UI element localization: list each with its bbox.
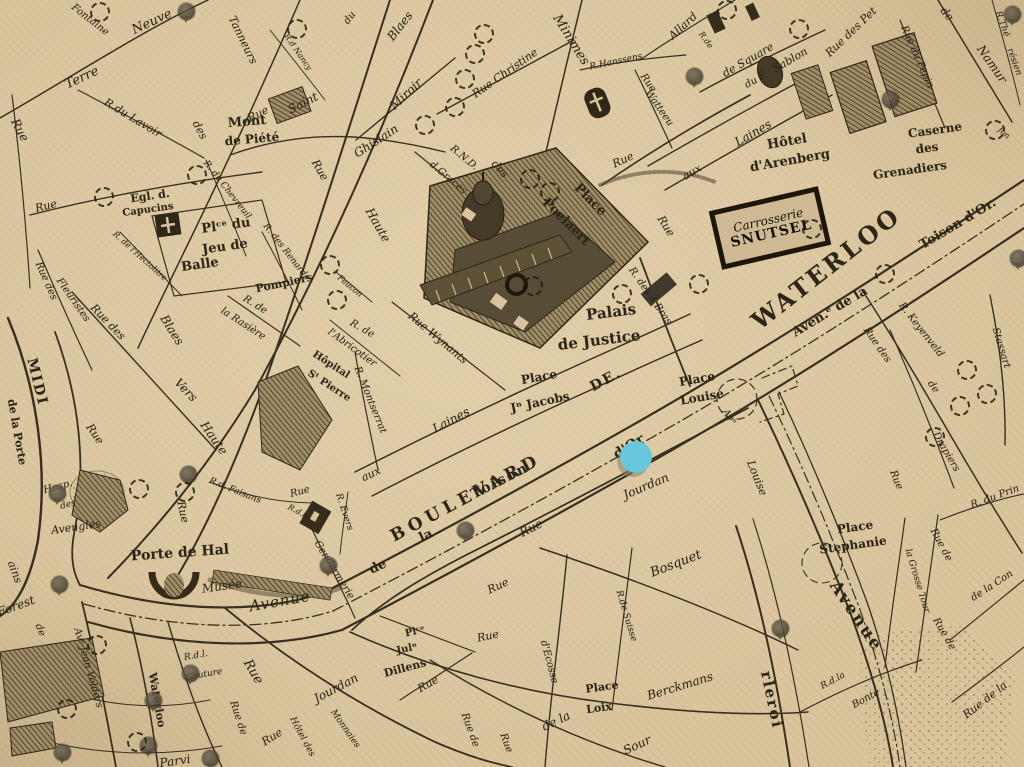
map-pin[interactable] — [182, 665, 199, 682]
poi-dashed-circle — [90, 2, 110, 22]
poi-dashed-circle — [540, 182, 560, 202]
map-pin[interactable] — [320, 557, 337, 574]
poi-dashed-circle — [455, 69, 475, 89]
poi-dashed-circle — [474, 24, 494, 44]
poi-dashed-circle — [950, 396, 970, 416]
poi-dashed-circle — [175, 482, 195, 502]
map-pin[interactable] — [178, 3, 195, 20]
map-pin[interactable] — [180, 466, 197, 483]
map-pin[interactable] — [145, 692, 162, 709]
poi-dashed-circle — [520, 169, 540, 189]
poi-dashed-circle — [57, 699, 77, 719]
map-pin[interactable] — [51, 576, 68, 593]
map-pin[interactable] — [202, 750, 219, 767]
map-pin[interactable] — [1010, 250, 1024, 267]
map-pin[interactable] — [882, 91, 899, 108]
map-pin[interactable] — [457, 522, 474, 539]
poi-dashed-circle — [127, 732, 147, 752]
poi-dashed-circle — [445, 97, 465, 117]
poi-dashed-circle — [957, 360, 977, 380]
poi-dashed-circle — [717, 0, 737, 20]
poi-dashed-circle — [789, 19, 809, 39]
marker-layer — [0, 0, 1024, 767]
poi-dashed-circle — [465, 44, 485, 64]
map-pin[interactable] — [1004, 6, 1021, 23]
poi-dashed-circle — [689, 274, 709, 294]
poi-ring — [505, 273, 528, 296]
poi-dashed-circle — [802, 219, 822, 239]
map-pin[interactable] — [49, 485, 66, 502]
map-pin[interactable] — [686, 68, 703, 85]
map-canvas: FontaineTerreNeuveRueR.du LavoirRueTanne… — [0, 0, 1024, 767]
poi-dashed-circle — [327, 290, 347, 310]
highlight-dot[interactable] — [620, 441, 652, 473]
map-pin[interactable] — [772, 620, 789, 637]
poi-dashed-circle — [287, 19, 307, 39]
poi-dashed-circle — [977, 384, 997, 404]
poi-dashed-circle — [94, 187, 114, 207]
poi-dashed-circle — [320, 255, 340, 275]
poi-dashed-circle — [415, 115, 435, 135]
poi-dashed-circle — [129, 479, 149, 499]
map-pin[interactable] — [54, 744, 71, 761]
poi-dashed-circle — [875, 264, 895, 284]
poi-dashed-circle — [612, 284, 632, 304]
poi-dashed-circle — [985, 120, 1005, 140]
poi-dashed-circle — [925, 427, 945, 447]
poi-dashed-circle — [187, 165, 207, 185]
poi-dashed-circle — [87, 635, 107, 655]
